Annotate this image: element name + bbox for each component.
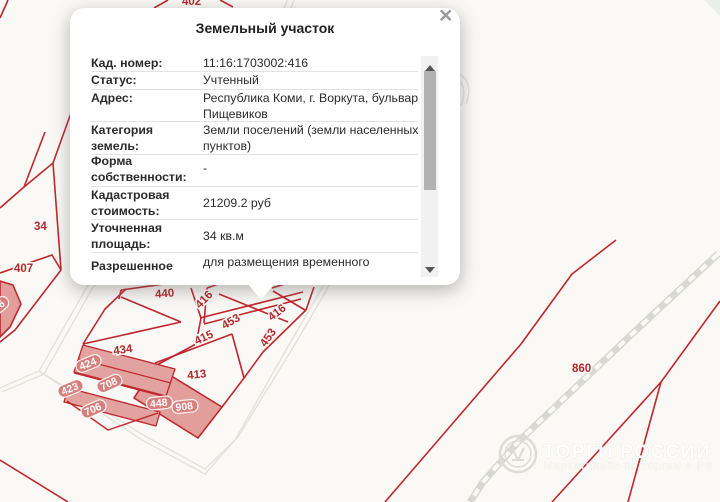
svg-text:440: 440 [155, 287, 175, 301]
svg-text:Маркетплейс по торгам в РФ: Маркетплейс по торгам в РФ [544, 460, 714, 472]
svg-text:908: 908 [175, 400, 194, 414]
svg-text:860: 860 [572, 363, 591, 375]
svg-text:402: 402 [182, 0, 201, 8]
svg-text:448: 448 [149, 397, 168, 411]
svg-text:34: 34 [34, 221, 47, 233]
svg-text:407: 407 [14, 263, 33, 275]
svg-text:413: 413 [187, 368, 207, 382]
